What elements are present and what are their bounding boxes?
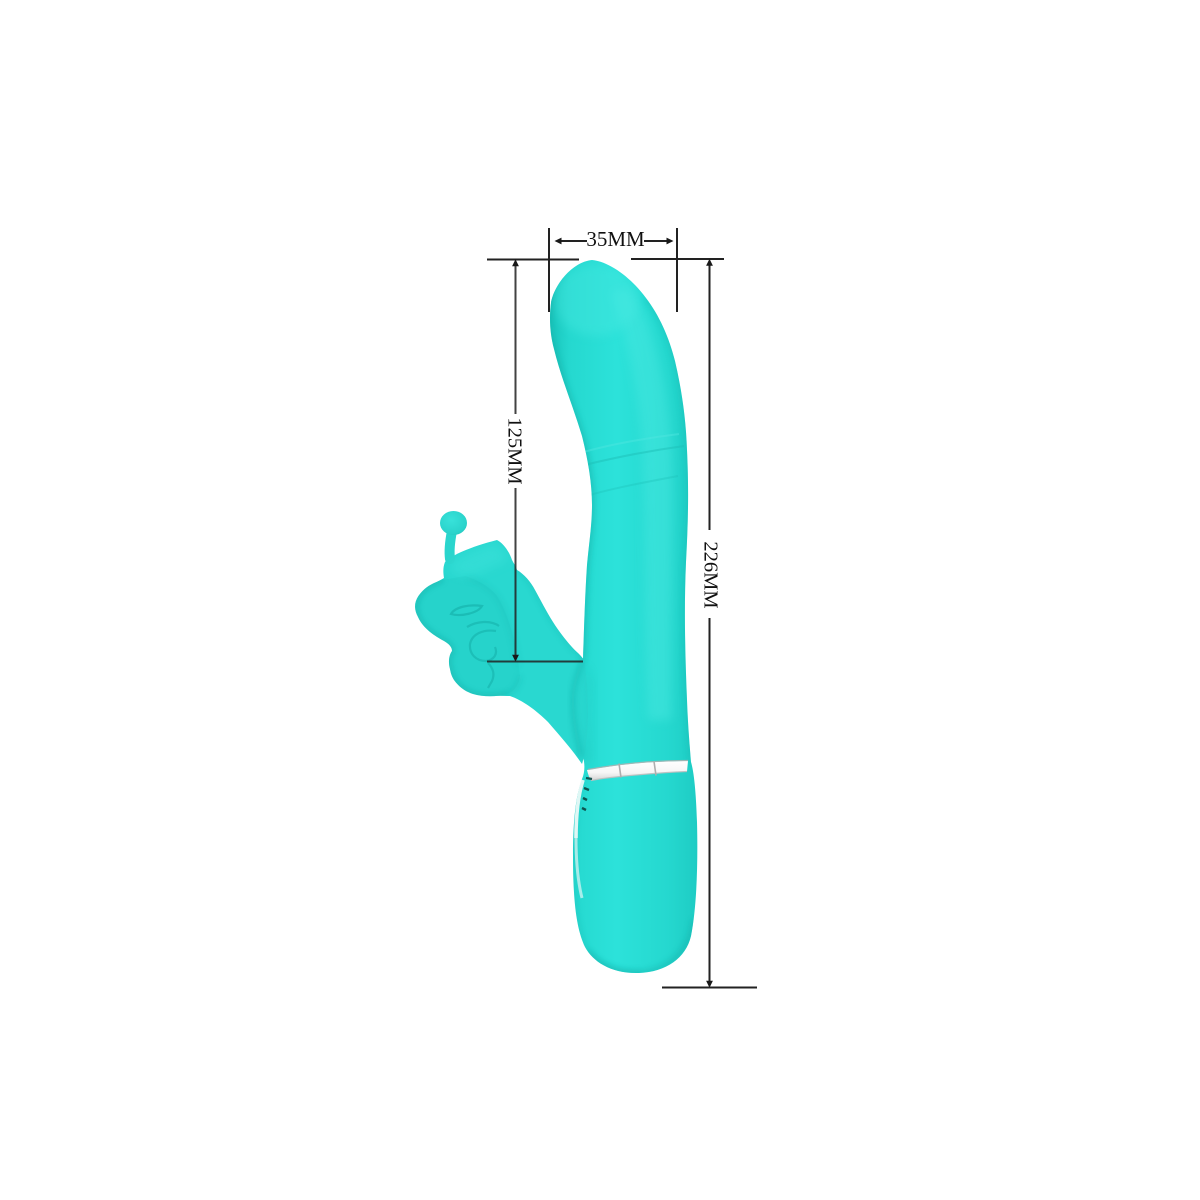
svg-text:226MM: 226MM <box>700 541 722 608</box>
svg-text:35MM: 35MM <box>586 227 645 251</box>
svg-text:125MM: 125MM <box>504 417 526 484</box>
